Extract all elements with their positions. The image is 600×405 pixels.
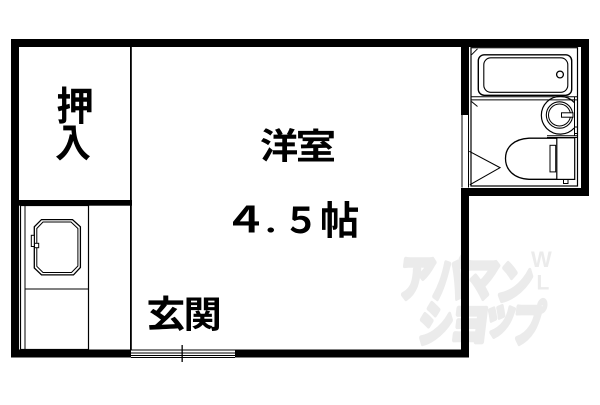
svg-text:W: W <box>531 247 552 272</box>
svg-text:L: L <box>537 272 550 295</box>
